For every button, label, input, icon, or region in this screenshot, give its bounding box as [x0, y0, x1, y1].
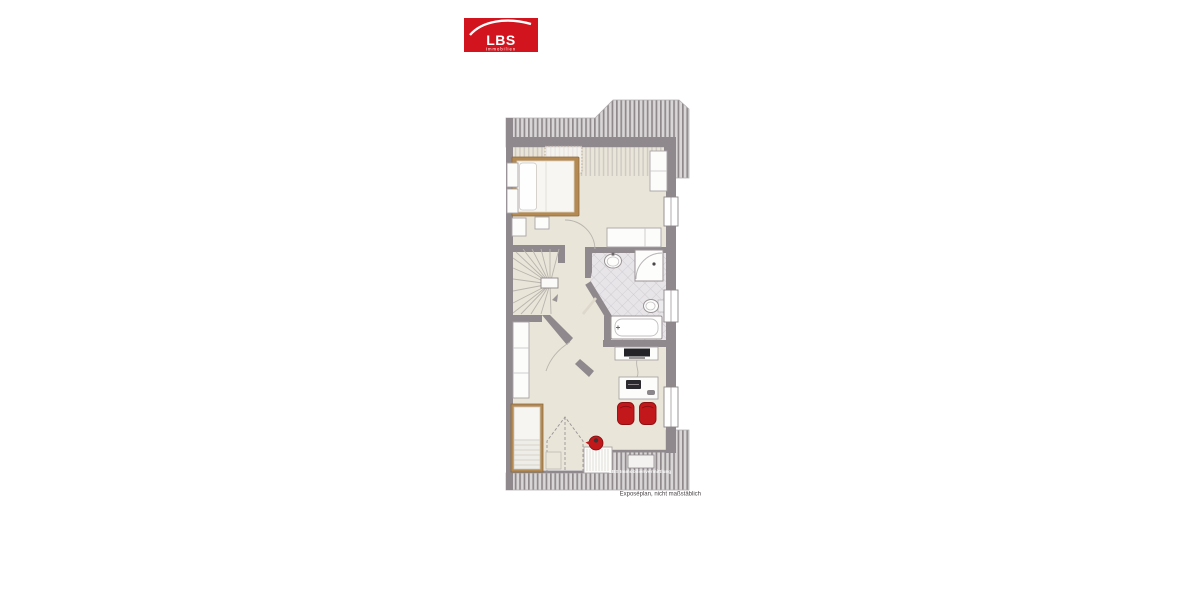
page: LBS Immobilien: [0, 0, 1200, 600]
stool-small: [535, 217, 549, 229]
shower-drain: [652, 262, 655, 265]
wardrobe-right: [650, 151, 667, 191]
shower: [635, 250, 663, 281]
hall-dresser: [607, 228, 661, 247]
wall-bath-bottom: [603, 340, 666, 347]
lbs-logo: LBS Immobilien: [464, 18, 538, 52]
wardrobe-left: [513, 322, 529, 398]
lounger: [511, 404, 543, 472]
floorplan-drawing: LBS Immobilien: [0, 0, 1200, 600]
desk: [619, 377, 658, 399]
sink-tap: [612, 253, 615, 256]
toilet: [644, 300, 665, 313]
nightstand-upper: [507, 163, 518, 187]
wall-top: [506, 137, 676, 147]
wall-bottom-edge-right: [612, 450, 668, 453]
bed: [512, 157, 579, 216]
teapot-lid: [594, 438, 598, 442]
wall-bath-left-lower: [604, 316, 611, 342]
bed-pillow: [520, 163, 537, 210]
window-bedroom: [664, 197, 678, 226]
wall-stair-stub: [558, 245, 565, 263]
mouse-icon: [647, 390, 655, 395]
window-living: [664, 387, 678, 427]
plan-watermark: LBS Immobilienvermittlung: [609, 469, 671, 475]
plan-caption: Exposéplan, nicht maßstäblich: [620, 492, 701, 498]
logo-tagline-text: Immobilien: [486, 47, 516, 52]
window-bathroom: [664, 290, 678, 322]
bathtub: [611, 316, 662, 339]
tv-icon: [624, 349, 650, 357]
wall-bedroom-hall: [506, 245, 565, 252]
floor-hatch-box: [628, 455, 654, 468]
closet-box: [546, 452, 561, 469]
nightstand-lower: [507, 189, 518, 213]
stair-landing: [541, 278, 558, 288]
wall-stair-bottom: [506, 315, 542, 322]
bench-small: [512, 218, 526, 236]
teapot-icon: [589, 436, 603, 450]
lounger-pillow: [514, 407, 540, 440]
